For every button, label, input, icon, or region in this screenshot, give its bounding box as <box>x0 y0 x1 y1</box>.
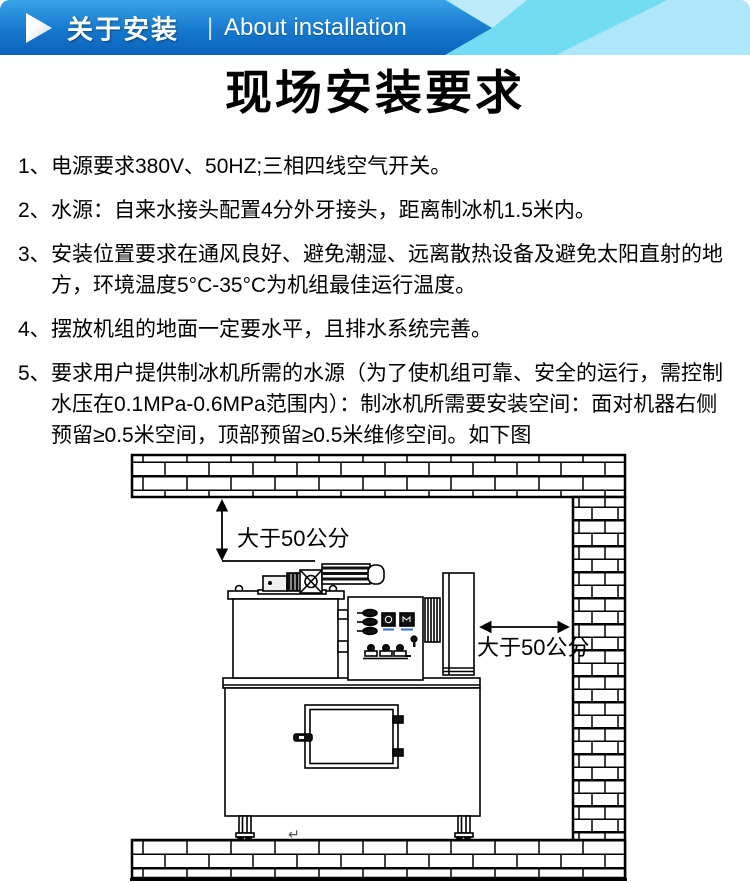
panel-switches <box>363 645 411 659</box>
door-hinge-bottom <box>393 749 403 756</box>
banner-divider: | <box>207 14 213 42</box>
storage-bin <box>225 688 480 816</box>
item-text: 水源：自来水接头配置4分外牙接头，距离制冰机1.5米内。 <box>51 195 732 226</box>
machine-legs <box>236 816 473 840</box>
floor-brick-band <box>130 840 627 880</box>
item-text: 安装位置要求在通风良好、避免潮湿、远离散热设备及避免太阳直射的地方，环境温度5°… <box>51 239 732 301</box>
banner-title-en: About installation <box>224 14 407 42</box>
item-number: 4、 <box>18 314 51 345</box>
requirement-item-4: 4、 摆放机组的地面一定要水平，且排水系统完善。 <box>18 314 732 345</box>
item-text: 电源要求380V、50HZ;三相四线空气开关。 <box>51 151 732 182</box>
item-text: 要求用户提供制冰机所需的水源（为了使机组可靠、安全的运行，需控制水压在0.1MP… <box>51 358 732 451</box>
item-number: 2、 <box>18 195 51 226</box>
fan-housing <box>443 573 474 675</box>
control-panel <box>348 597 423 680</box>
banner-title-zh: 关于安装 <box>67 9 179 46</box>
right-clearance-label: 大于50公分 <box>477 635 589 660</box>
product-detail-page: 关于安装 | About installation 现场安装要求 1、 电源要求… <box>0 0 750 883</box>
requirements-list: 1、 电源要求380V、50HZ;三相四线空气开关。 2、 水源：自来水接头配置… <box>18 151 732 464</box>
indicator-lights <box>357 610 377 635</box>
requirement-item-1: 1、 电源要求380V、50HZ;三相四线空气开关。 <box>18 151 732 182</box>
item-number: 3、 <box>18 239 51 301</box>
right-brick-wall <box>573 497 625 878</box>
item-number: 1、 <box>18 151 51 182</box>
top-clearance-label: 大于50公分 <box>237 526 349 551</box>
installation-diagram: 大于50公分 大于50公分 <box>0 440 750 883</box>
requirement-item-2: 2、 水源：自来水接头配置4分外牙接头，距离制冰机1.5米内。 <box>18 195 732 226</box>
drain-arrow-icon: ↵ <box>288 826 300 842</box>
page-title: 现场安装要求 <box>0 66 750 120</box>
condenser-section <box>425 573 474 675</box>
door-hinge-top <box>393 716 403 723</box>
requirement-item-3: 3、 安装位置要求在通风良好、避免潮湿、远离散热设备及避免太阳直射的地方，环境温… <box>18 239 732 301</box>
item-number: 5、 <box>18 358 51 451</box>
evaporator-unit <box>228 586 348 679</box>
ceiling-brick-band <box>132 455 625 497</box>
drive-motor-assembly <box>258 564 384 594</box>
requirement-item-5: 5、 要求用户提供制冰机所需的水源（为了使机组可靠、安全的运行，需控制水压在0.… <box>18 358 732 451</box>
ice-machine <box>223 564 480 840</box>
section-banner: 关于安装 | About installation <box>0 0 750 55</box>
item-text: 摆放机组的地面一定要水平，且排水系统完善。 <box>51 314 732 345</box>
